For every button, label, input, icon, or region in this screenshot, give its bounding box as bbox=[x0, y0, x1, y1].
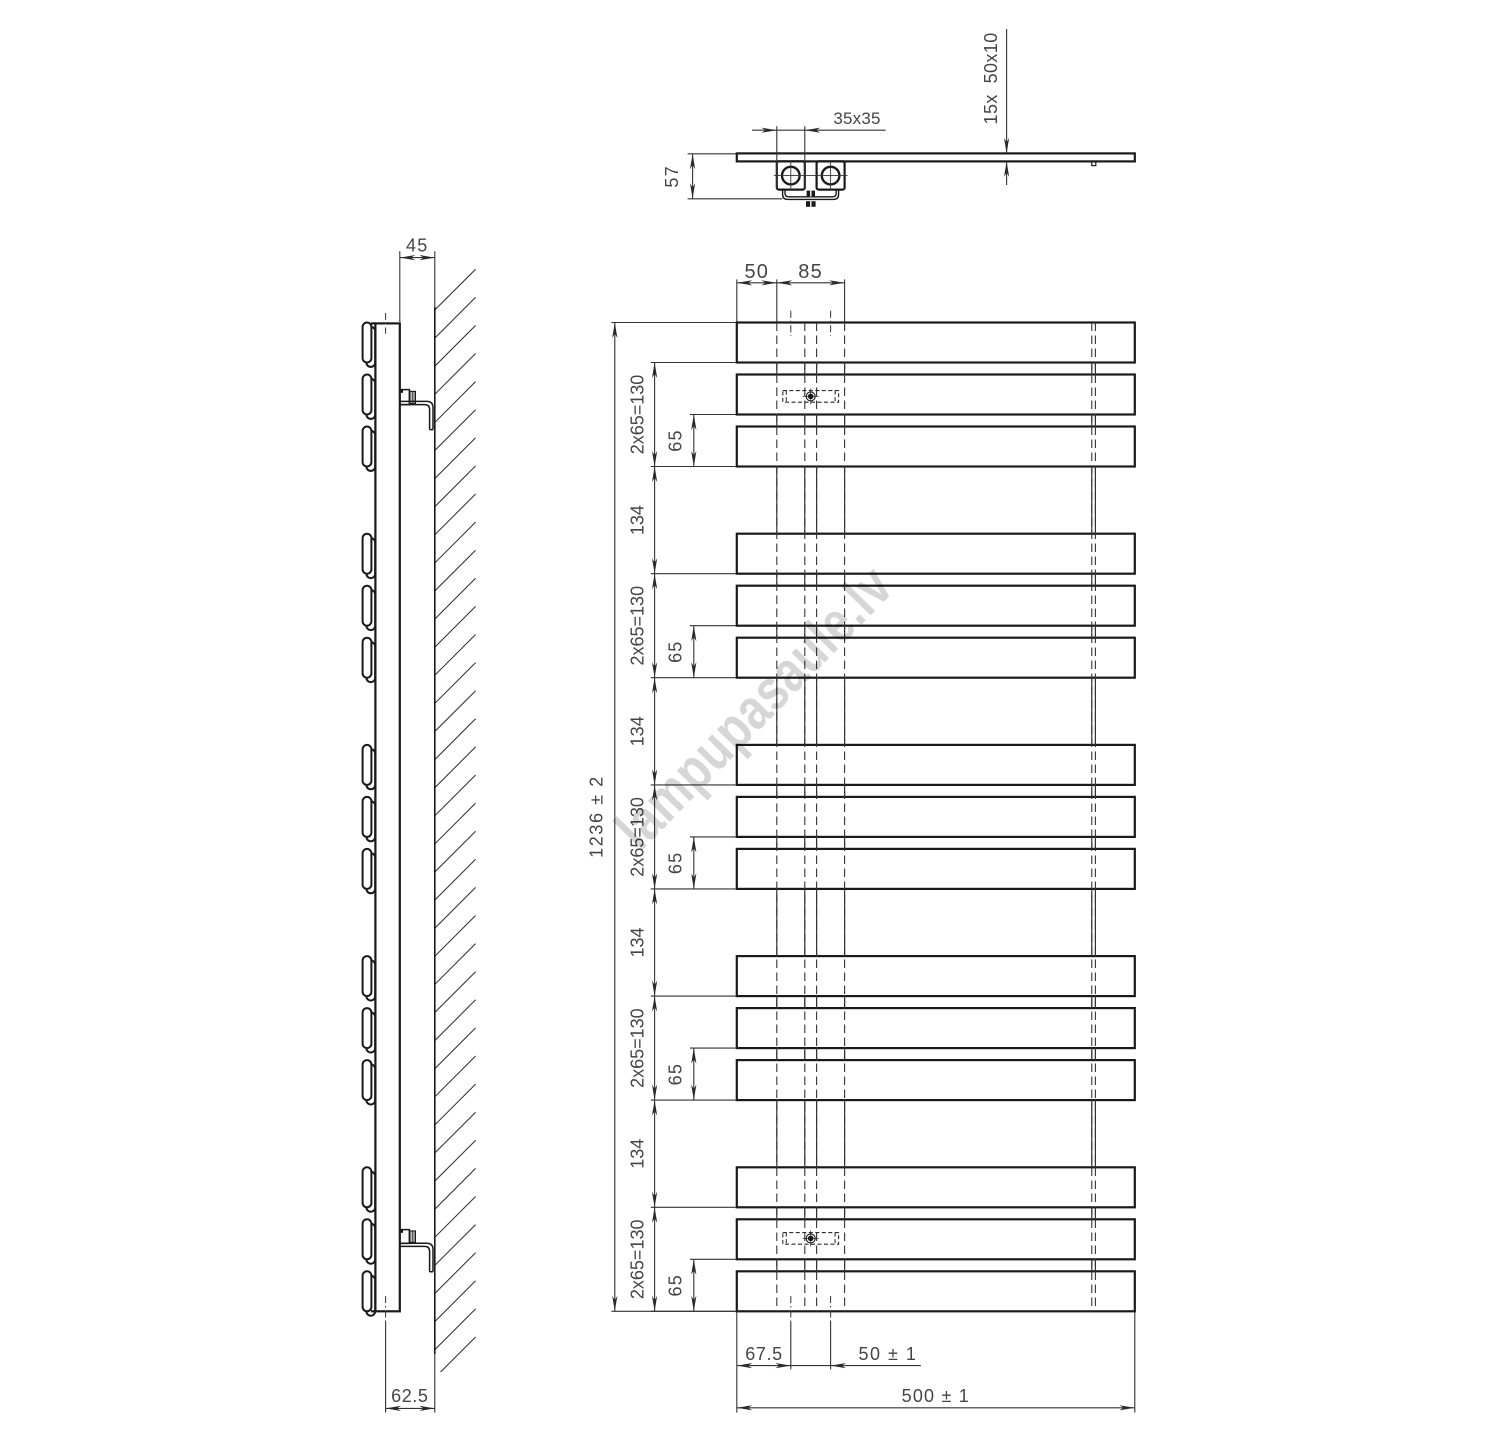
svg-text:500 ± 1: 500 ± 1 bbox=[902, 1386, 970, 1406]
svg-text:134: 134 bbox=[628, 716, 648, 746]
svg-text:134: 134 bbox=[628, 927, 648, 957]
svg-text:2x65=130: 2x65=130 bbox=[628, 586, 648, 666]
svg-text:134: 134 bbox=[628, 1139, 648, 1169]
svg-text:62.5: 62.5 bbox=[391, 1386, 428, 1406]
svg-text:50 ± 1: 50 ± 1 bbox=[859, 1344, 918, 1364]
svg-text:35x35: 35x35 bbox=[833, 109, 880, 128]
svg-text:2x65=130: 2x65=130 bbox=[628, 375, 648, 455]
svg-text:57: 57 bbox=[662, 165, 682, 187]
svg-text:2x65=130: 2x65=130 bbox=[628, 1220, 648, 1300]
svg-text:2x65=130: 2x65=130 bbox=[628, 1008, 648, 1088]
svg-text:134: 134 bbox=[628, 505, 648, 535]
svg-text:65: 65 bbox=[666, 852, 686, 874]
svg-text:65: 65 bbox=[666, 1063, 686, 1085]
svg-text:65: 65 bbox=[666, 429, 686, 451]
svg-text:65: 65 bbox=[666, 640, 686, 662]
svg-text:15x 50x10: 15x 50x10 bbox=[981, 32, 1001, 124]
svg-text:67.5: 67.5 bbox=[745, 1344, 782, 1364]
svg-text:65: 65 bbox=[666, 1274, 686, 1296]
svg-text:85: 85 bbox=[798, 261, 823, 283]
svg-text:45: 45 bbox=[406, 236, 428, 256]
svg-text:50: 50 bbox=[744, 261, 769, 283]
